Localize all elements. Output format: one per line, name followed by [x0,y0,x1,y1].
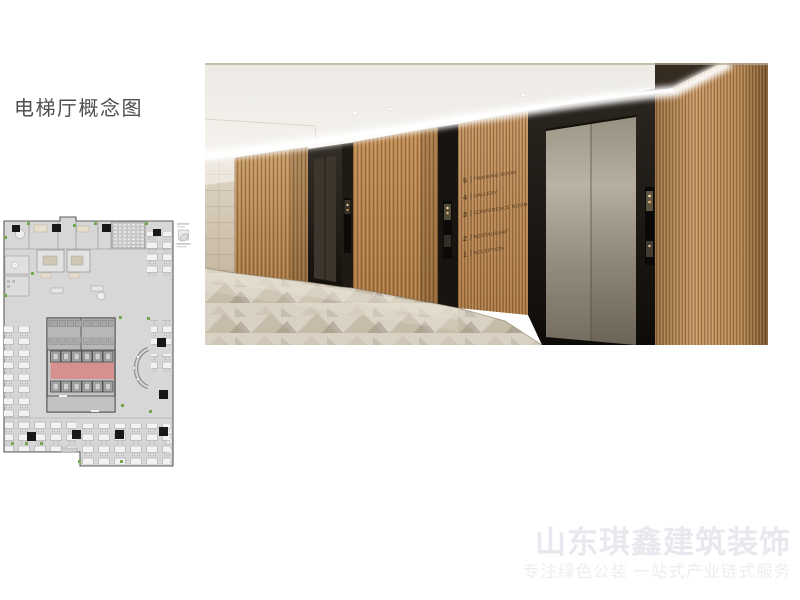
directory-floor-2: 2 [463,236,467,244]
elevator-opening-1 [308,143,353,289]
watermark-slogan: 专注绿色公装 一站式产业链式服务 [523,564,791,581]
plan-elevator-hall-highlight [51,363,115,380]
page-title: 电梯厅概念图 [14,92,143,121]
photo-top-edge [205,63,768,65]
wood-panel-mid [353,127,438,304]
rendering-svg: 5 TRAINING ROOM 4 GALLERY 3 CONFERENCE R… [205,63,768,345]
directory-floor-1: 1 [463,252,467,260]
directory-floor-3: 3 [463,212,467,220]
watermark: 山东琪鑫建筑装饰 专注绿色公装 一站式产业链式服务 [523,527,791,581]
elevator-opening-2 [528,89,655,345]
plan-legend-stamp [177,223,191,247]
watermark-company: 山东琪鑫建筑装饰 [523,527,791,558]
directory-floor-5: 5 [463,178,467,186]
elevator-hall-rendering: 5 TRAINING ROOM 4 GALLERY 3 CONFERENCE R… [205,63,768,345]
slide-canvas: 电梯厅概念图 [0,0,800,600]
floorplan-thumbnail [1,216,193,471]
directory-floor-4: 4 [463,195,467,203]
shaft-gap [438,124,458,308]
wood-panel-near [655,63,768,345]
wood-panel-far [235,147,308,282]
floorplan-svg [1,216,193,471]
plan-core [47,318,115,412]
stone-wall [205,158,235,273]
